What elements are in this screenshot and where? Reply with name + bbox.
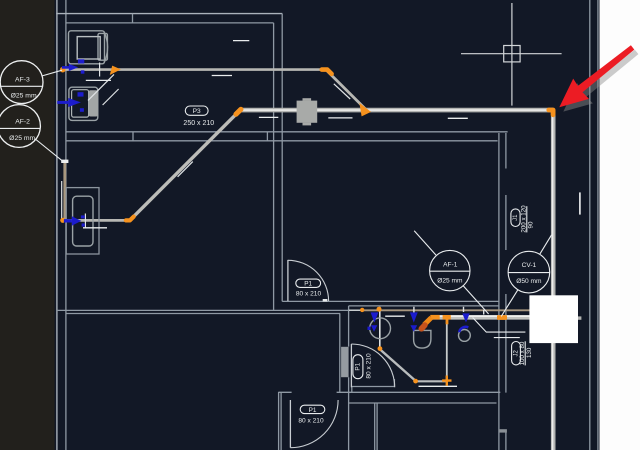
svg-text:J1: J1 (513, 214, 519, 221)
svg-text:90: 90 (527, 221, 534, 228)
svg-text:P3: P3 (193, 108, 201, 115)
svg-text:130: 130 (526, 347, 533, 358)
svg-text:P1: P1 (304, 281, 312, 288)
svg-text:80 x 210: 80 x 210 (296, 291, 322, 298)
svg-text:Ø50 mm: Ø50 mm (516, 278, 542, 285)
svg-text:250 x 210: 250 x 210 (183, 120, 214, 127)
svg-text:80 x 210: 80 x 210 (365, 353, 372, 379)
svg-text:AF-3: AF-3 (15, 77, 30, 84)
svg-text:Ø25 mm: Ø25 mm (11, 92, 37, 99)
svg-text:P1: P1 (309, 407, 317, 414)
svg-text:AF-1: AF-1 (443, 261, 458, 268)
svg-text:Ø25 mm: Ø25 mm (9, 135, 35, 142)
svg-text:CV-1: CV-1 (522, 262, 537, 269)
svg-text:Ø25 mm: Ø25 mm (437, 277, 463, 284)
svg-text:80 x 210: 80 x 210 (298, 418, 324, 425)
svg-text:P1: P1 (355, 362, 362, 370)
svg-text:AF-2: AF-2 (15, 118, 30, 125)
